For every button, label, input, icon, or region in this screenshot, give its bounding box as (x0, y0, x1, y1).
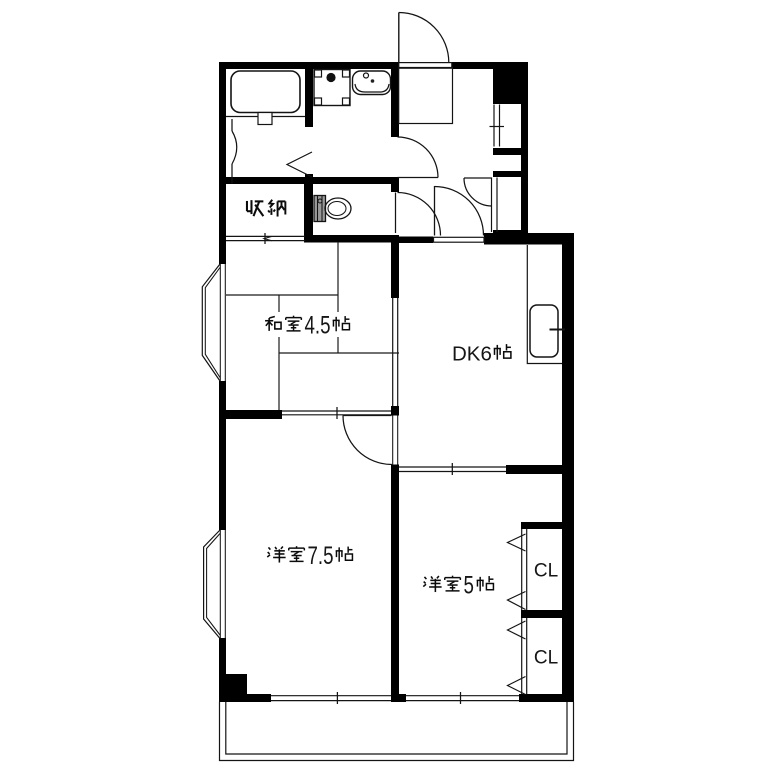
svg-text:CL: CL (534, 561, 558, 582)
svg-text:5: 5 (464, 571, 474, 599)
svg-text:DK6: DK6 (452, 343, 492, 366)
svg-text:4.5: 4.5 (305, 311, 331, 339)
svg-text:7.5: 7.5 (308, 541, 334, 569)
svg-text:CL: CL (534, 648, 558, 669)
